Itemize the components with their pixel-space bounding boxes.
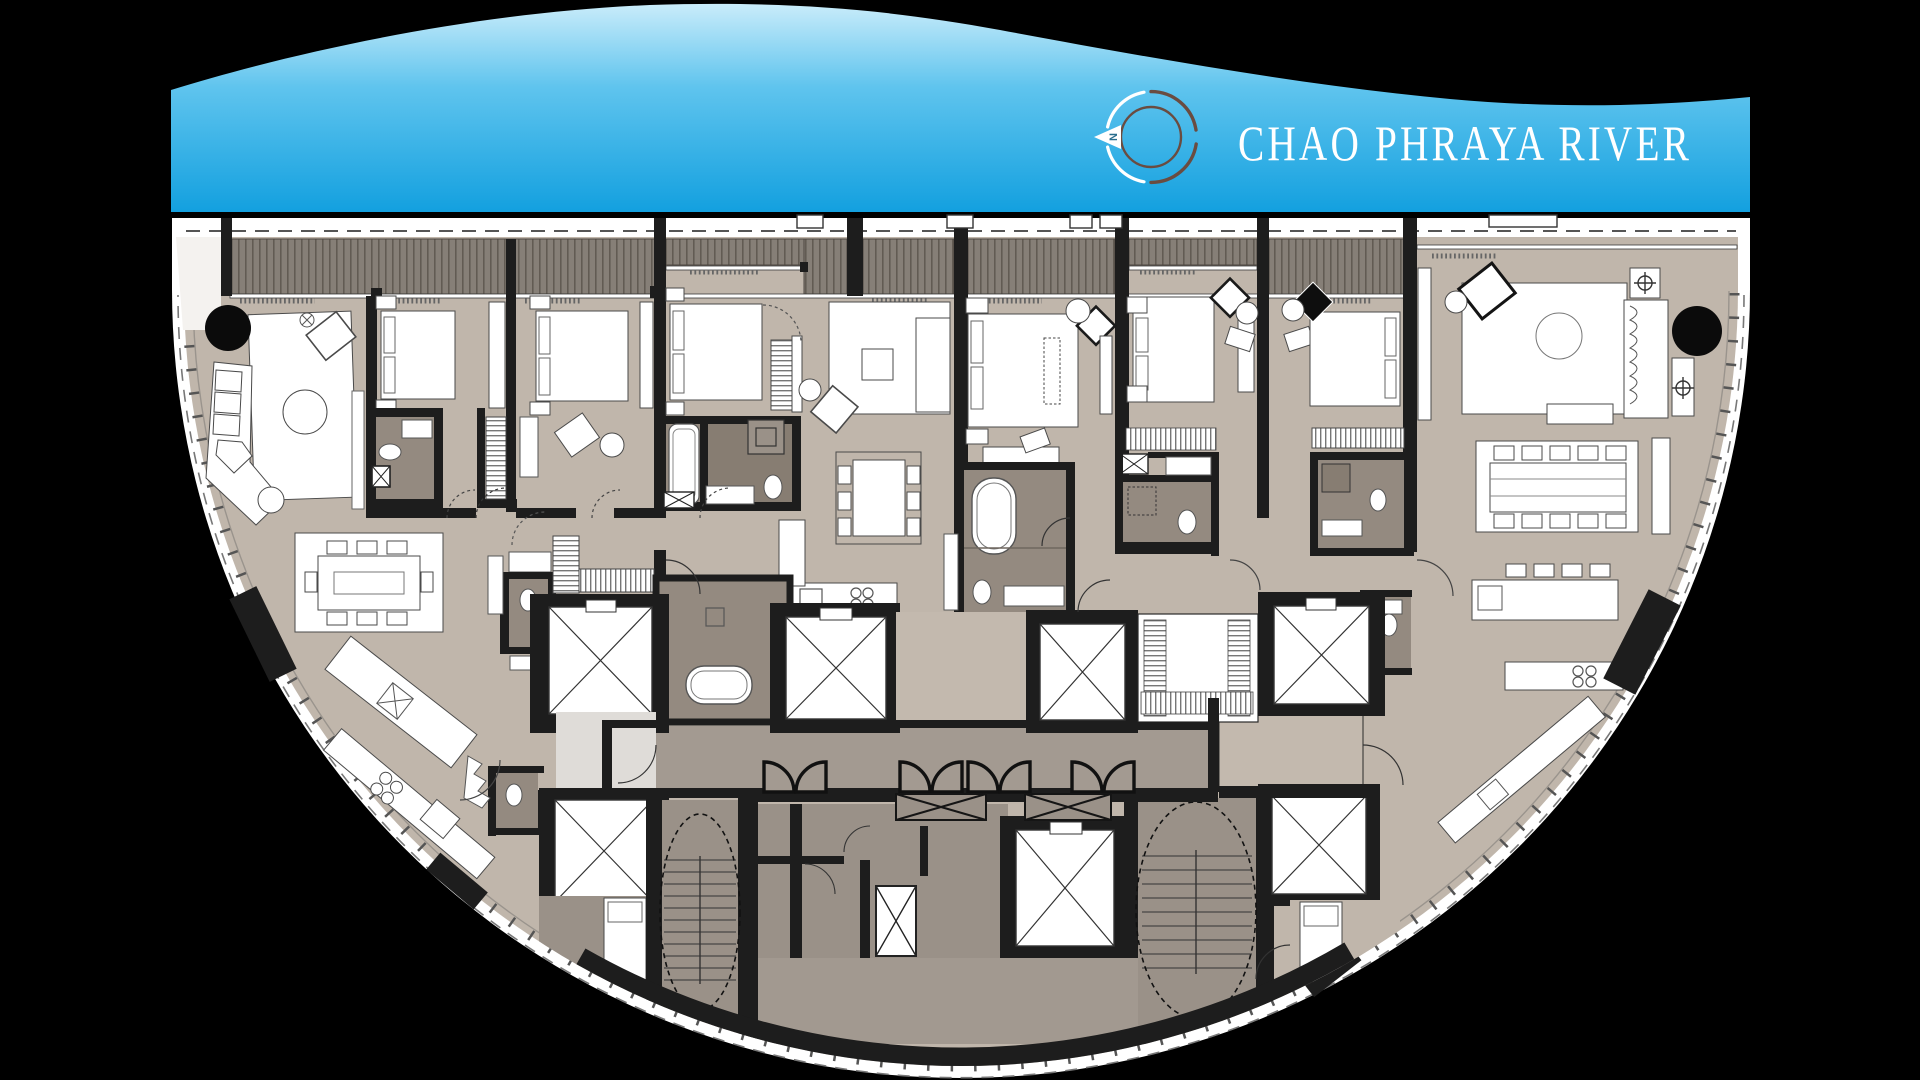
svg-text:N: N (1108, 133, 1120, 141)
svg-text:CHAO PHRAYA RIVER: CHAO PHRAYA RIVER (1238, 115, 1692, 171)
